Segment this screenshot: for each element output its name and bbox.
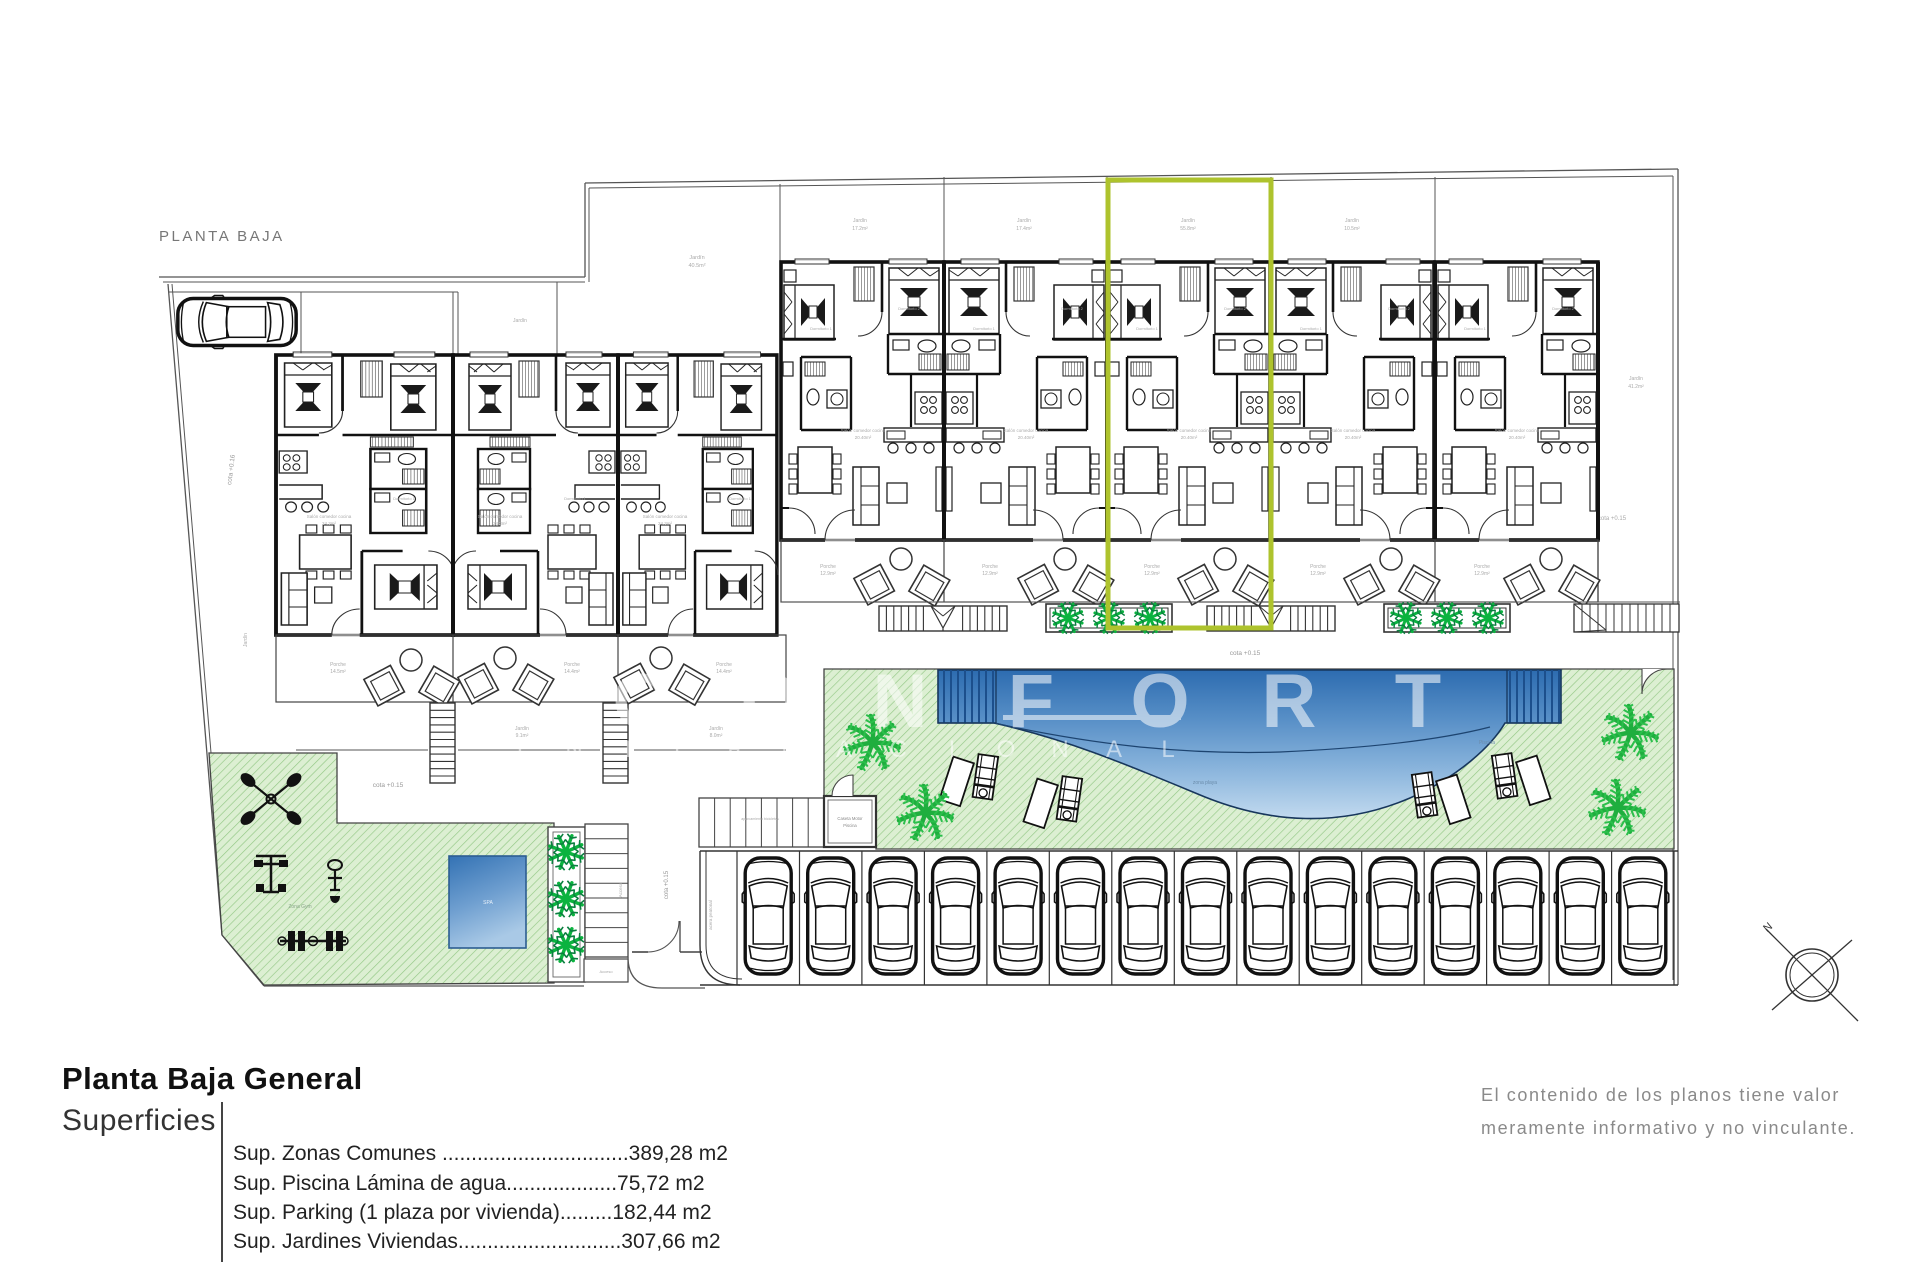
svg-text:Jardín: Jardín — [1345, 218, 1359, 224]
svg-text:I: I — [949, 736, 956, 763]
svg-text:N: N — [873, 659, 928, 744]
svg-text:Dormitorio 1: Dormitorio 1 — [1464, 326, 1487, 331]
svg-text:C: C — [889, 736, 906, 763]
svg-text:Zona Gym: Zona Gym — [288, 904, 311, 910]
svg-text:Jardín: Jardín — [515, 726, 529, 732]
svg-text:Porche: Porche — [1144, 564, 1160, 570]
svg-text:Salón comedor cocina: Salón comedor cocina — [643, 514, 688, 519]
svg-text:N: N — [565, 736, 582, 763]
svg-text:A: A — [836, 736, 852, 763]
svg-text:N: N — [781, 736, 798, 763]
svg-text:Salón comedor cocina: Salón comedor cocina — [1495, 428, 1540, 433]
svg-text:Planta Baja General: Planta Baja General — [62, 1061, 363, 1096]
svg-text:cota +0.15: cota +0.15 — [664, 870, 670, 899]
svg-text:20.40m²: 20.40m² — [1018, 435, 1035, 440]
svg-text:14.5m²: 14.5m² — [330, 669, 346, 675]
svg-text:12.9m²: 12.9m² — [982, 571, 998, 577]
svg-text:10.5m²: 10.5m² — [1344, 226, 1360, 232]
svg-text:12.9m²: 12.9m² — [820, 571, 836, 577]
svg-text:Jardín: Jardín — [709, 726, 723, 732]
svg-text:Dormitorio 1: Dormitorio 1 — [1136, 326, 1159, 331]
svg-text:Sup. Jardines Viviendas.......: Sup. Jardines Viviendas.................… — [233, 1230, 721, 1253]
svg-text:14.4m²: 14.4m² — [564, 669, 580, 675]
svg-text:O: O — [1130, 659, 1189, 744]
svg-text:cota +0.15: cota +0.15 — [1230, 650, 1261, 657]
svg-text:Dormitorio 2: Dormitorio 2 — [1388, 306, 1411, 311]
svg-text:Dormitorio 1: Dormitorio 1 — [810, 326, 833, 331]
svg-text:Jardín: Jardín — [1017, 218, 1031, 224]
svg-text:L: L — [1161, 736, 1174, 763]
svg-text:Dormitorio 2: Dormitorio 2 — [1224, 306, 1247, 311]
svg-text:Porche: Porche — [820, 564, 836, 570]
svg-text:Salón comedor cocina: Salón comedor cocina — [1331, 428, 1376, 433]
svg-text:Superficies: Superficies — [62, 1104, 216, 1137]
svg-text:Dormitorio 1: Dormitorio 1 — [393, 496, 416, 501]
svg-text:Jardín: Jardín — [689, 255, 704, 261]
svg-text:C: C — [613, 659, 668, 744]
svg-text:Salón comedor cocina: Salón comedor cocina — [1004, 428, 1049, 433]
svg-text:Acceso: Acceso — [618, 882, 623, 897]
svg-text:A: A — [1106, 736, 1122, 763]
svg-text:R: R — [727, 736, 744, 763]
svg-text:Jardín: Jardín — [243, 633, 249, 647]
svg-text:20.40m²: 20.40m² — [855, 435, 872, 440]
svg-text:Porche: Porche — [564, 662, 580, 668]
svg-text:T: T — [621, 736, 636, 763]
svg-text:R: R — [1262, 659, 1317, 744]
svg-text:PLANTA BAJA: PLANTA BAJA — [159, 228, 285, 245]
svg-text:14.4m²: 14.4m² — [716, 669, 732, 675]
svg-text:O: O — [740, 659, 799, 744]
svg-text:Salón comedor cocina: Salón comedor cocina — [1167, 428, 1212, 433]
svg-text:T: T — [1395, 659, 1441, 744]
svg-text:Piscina: Piscina — [843, 823, 857, 828]
svg-text:cota +0.15: cota +0.15 — [373, 782, 404, 789]
svg-text:acera peatonal: acera peatonal — [708, 900, 713, 930]
svg-text:Dormitorio 1: Dormitorio 1 — [564, 496, 587, 501]
svg-text:20.40m²: 20.40m² — [1509, 435, 1526, 440]
svg-text:O: O — [997, 736, 1016, 763]
svg-text:F: F — [1008, 659, 1054, 744]
svg-text:SPA: SPA — [483, 900, 493, 906]
svg-text:Salón comedor cocina: Salón comedor cocina — [478, 514, 523, 519]
svg-text:Sup. Zonas Comunes ...........: Sup. Zonas Comunes .....................… — [233, 1142, 728, 1165]
svg-text:17.4m²: 17.4m² — [1016, 226, 1032, 232]
svg-text:Salón comedor cocina: Salón comedor cocina — [841, 428, 886, 433]
svg-text:Porche: Porche — [330, 662, 346, 668]
svg-text:zona playa: zona playa — [1193, 780, 1217, 786]
svg-text:40.5m²: 40.5m² — [688, 263, 705, 269]
svg-text:8.0m²: 8.0m² — [710, 733, 723, 739]
svg-text:Porche: Porche — [1310, 564, 1326, 570]
svg-text:24.3m²: 24.3m² — [322, 521, 337, 526]
svg-text:Porche: Porche — [1474, 564, 1490, 570]
svg-text:Jardín: Jardín — [1181, 218, 1195, 224]
svg-text:Jardín: Jardín — [513, 318, 527, 324]
svg-text:Sup. Piscina Lámina de agua...: Sup. Piscina Lámina de agua.............… — [233, 1172, 705, 1195]
svg-text:Salón comedor cocina: Salón comedor cocina — [307, 514, 352, 519]
svg-text:12.9m²: 12.9m² — [1144, 571, 1160, 577]
svg-text:12.9m²: 12.9m² — [1474, 571, 1490, 577]
svg-text:meramente informativo y no vin: meramente informativo y no vinculante. — [1481, 1118, 1856, 1138]
svg-text:Jardín: Jardín — [1629, 376, 1643, 382]
svg-text:Porche: Porche — [716, 662, 732, 668]
svg-text:24.3m²: 24.3m² — [658, 521, 673, 526]
svg-text:Piscina: Piscina — [1479, 740, 1495, 746]
svg-text:20.40m²: 20.40m² — [1345, 435, 1362, 440]
svg-text:Jardín: Jardín — [853, 218, 867, 224]
svg-text:12.9m²: 12.9m² — [1310, 571, 1326, 577]
svg-text:Caseta Motor: Caseta Motor — [837, 816, 863, 821]
svg-text:I: I — [517, 736, 524, 763]
svg-text:Sup. Parking (1 plaza por vivi: Sup. Parking (1 plaza por vivienda).....… — [233, 1201, 712, 1224]
svg-text:Porche: Porche — [982, 564, 998, 570]
svg-text:55.8m²: 55.8m² — [1180, 226, 1196, 232]
svg-text:Dormitorio 2: Dormitorio 2 — [1552, 306, 1575, 311]
svg-text:El contenido de los planos tie: El contenido de los planos tiene valor — [1481, 1085, 1840, 1105]
svg-text:20.40m²: 20.40m² — [1181, 435, 1198, 440]
svg-text:Dormitorio 1: Dormitorio 1 — [1300, 326, 1323, 331]
svg-text:Dormitorio 2: Dormitorio 2 — [1061, 306, 1084, 311]
svg-text:17.2m²: 17.2m² — [852, 226, 868, 232]
svg-text:24.3m²: 24.3m² — [493, 521, 508, 526]
svg-text:E: E — [674, 736, 690, 763]
svg-text:N: N — [1051, 736, 1068, 763]
svg-text:Dormitorio 1: Dormitorio 1 — [973, 326, 996, 331]
svg-text:41.2m²: 41.2m² — [1628, 384, 1644, 390]
svg-text:Dormitorio 2: Dormitorio 2 — [898, 306, 921, 311]
svg-text:cota +0.15: cota +0.15 — [1598, 516, 1627, 522]
svg-text:aparcamiento bicicletas: aparcamiento bicicletas — [741, 817, 779, 821]
svg-text:Dormitorio 1: Dormitorio 1 — [729, 496, 752, 501]
svg-text:Acceso: Acceso — [599, 969, 613, 974]
